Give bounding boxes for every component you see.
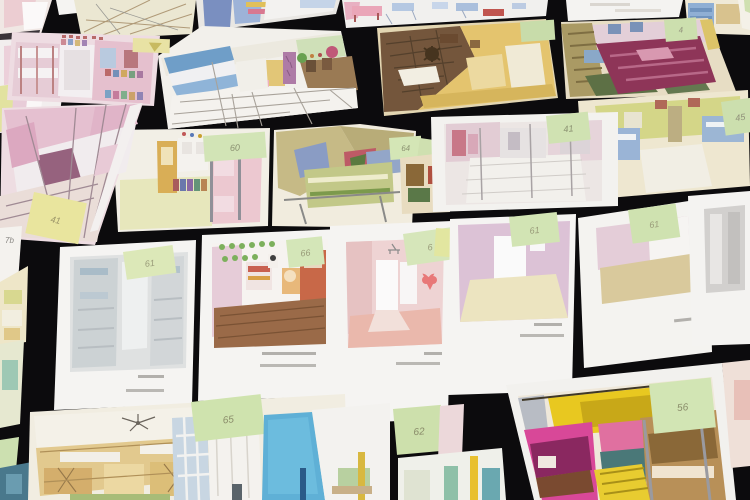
svg-text:61: 61 (144, 258, 155, 269)
svg-text:61: 61 (649, 219, 660, 230)
svg-text:41: 41 (563, 123, 574, 134)
svg-text:61: 61 (529, 225, 540, 236)
svg-text:56: 56 (677, 402, 690, 414)
svg-text:65: 65 (222, 414, 235, 426)
svg-text:60: 60 (230, 142, 241, 153)
svg-text:41: 41 (50, 214, 62, 226)
svg-text:64: 64 (401, 144, 411, 154)
svg-text:66: 66 (300, 248, 311, 259)
svg-text:62: 62 (413, 426, 425, 438)
svg-text:7b: 7b (5, 236, 14, 245)
